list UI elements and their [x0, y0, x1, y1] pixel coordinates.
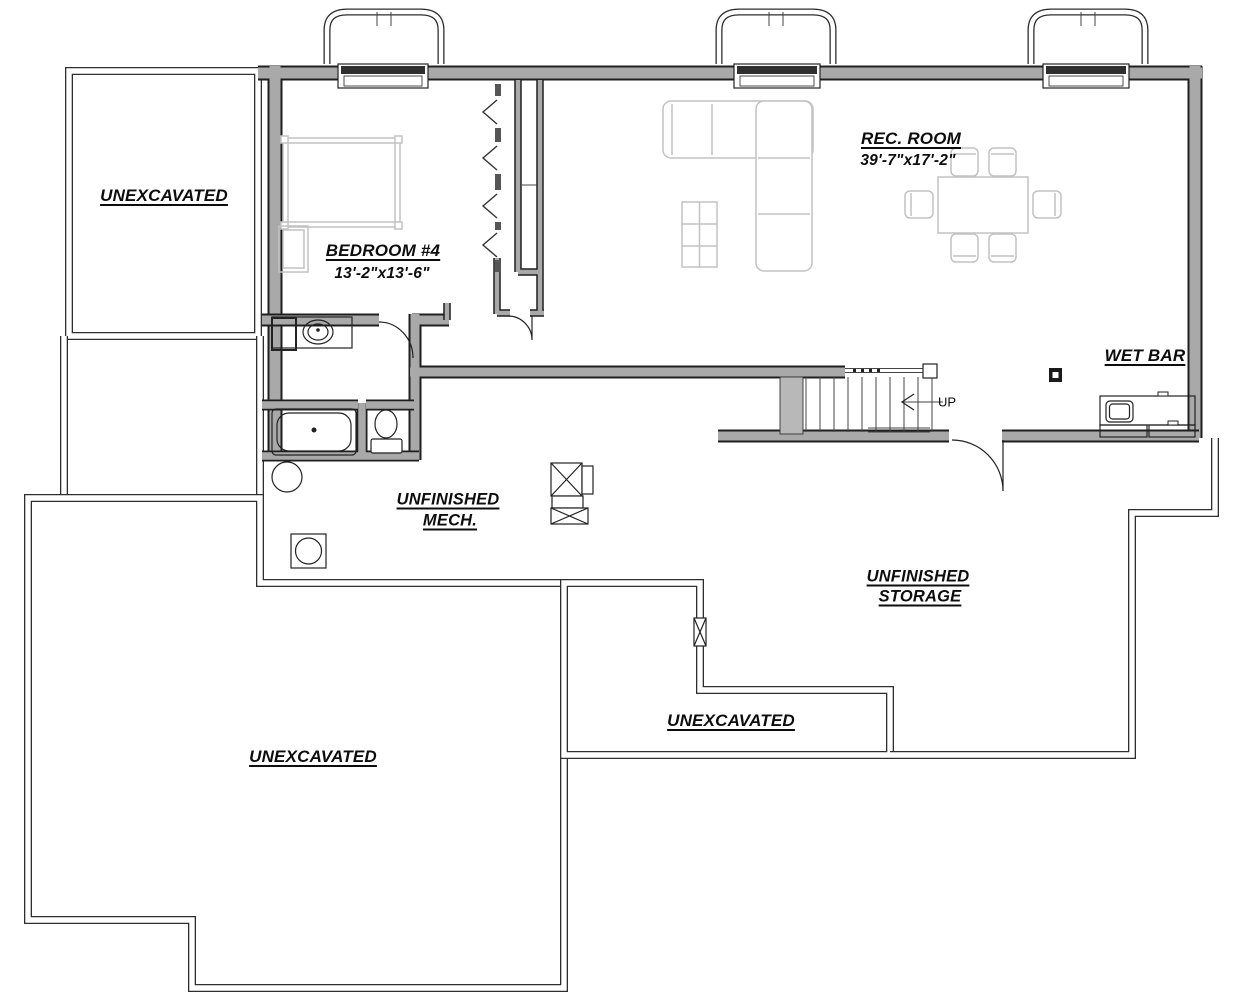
window-icon — [338, 64, 428, 88]
window-wells — [327, 12, 1145, 64]
room-label-unexcavated-sw: UNEXCAVATED — [249, 747, 377, 767]
bathroom-fixtures — [272, 317, 402, 568]
up-arrow-icon — [902, 394, 943, 410]
stairs-up-label: UP — [938, 395, 956, 410]
room-label-mech-line2: MECH. — [423, 512, 477, 531]
rec-room-furniture — [663, 101, 1061, 271]
room-dims-rec-room: 39'-7"x17'-2" — [860, 152, 955, 170]
nightstand-icon — [279, 226, 308, 272]
newel-post — [923, 364, 937, 378]
water-heater-icon — [272, 462, 302, 492]
window-icon — [734, 64, 820, 88]
room-label-rec-room: REC. ROOM — [861, 129, 961, 149]
room-label-storage-line1: UNFINISHED — [867, 568, 970, 587]
room-label-bedroom4: BEDROOM #4 — [326, 241, 440, 261]
bifold-closet-doors-icon — [483, 84, 501, 272]
electrical-panel-icon — [1049, 368, 1062, 382]
window-icon — [1043, 64, 1129, 88]
floorplan-drawing — [0, 0, 1237, 1008]
basement-floor-plan: UNEXCAVATED BEDROOM #4 13'-2"x13'-6" REC… — [0, 0, 1237, 1008]
room-label-storage-line2: STORAGE — [879, 588, 962, 607]
room-label-unexcavated-nw: UNEXCAVATED — [100, 186, 228, 206]
room-label-unexcavated-mid: UNEXCAVATED — [667, 711, 795, 731]
closet-door-icon — [508, 316, 532, 340]
room-label-mech-line1: UNFINISHED — [397, 491, 500, 510]
room-label-wet-bar: WET BAR — [1105, 346, 1186, 366]
floor-drain-icon — [291, 534, 326, 568]
toilet-icon — [371, 410, 402, 453]
room-dims-bedroom4: 13'-2"x13'-6" — [334, 265, 429, 283]
side-table-icon — [682, 202, 717, 267]
storage-door-icon — [952, 440, 1003, 491]
furnace-icon — [551, 463, 593, 524]
bed-icon — [281, 136, 402, 229]
foundation-vent-icon — [694, 618, 706, 646]
bedroom-door-icon — [379, 322, 413, 358]
bathtub-icon — [272, 409, 356, 455]
